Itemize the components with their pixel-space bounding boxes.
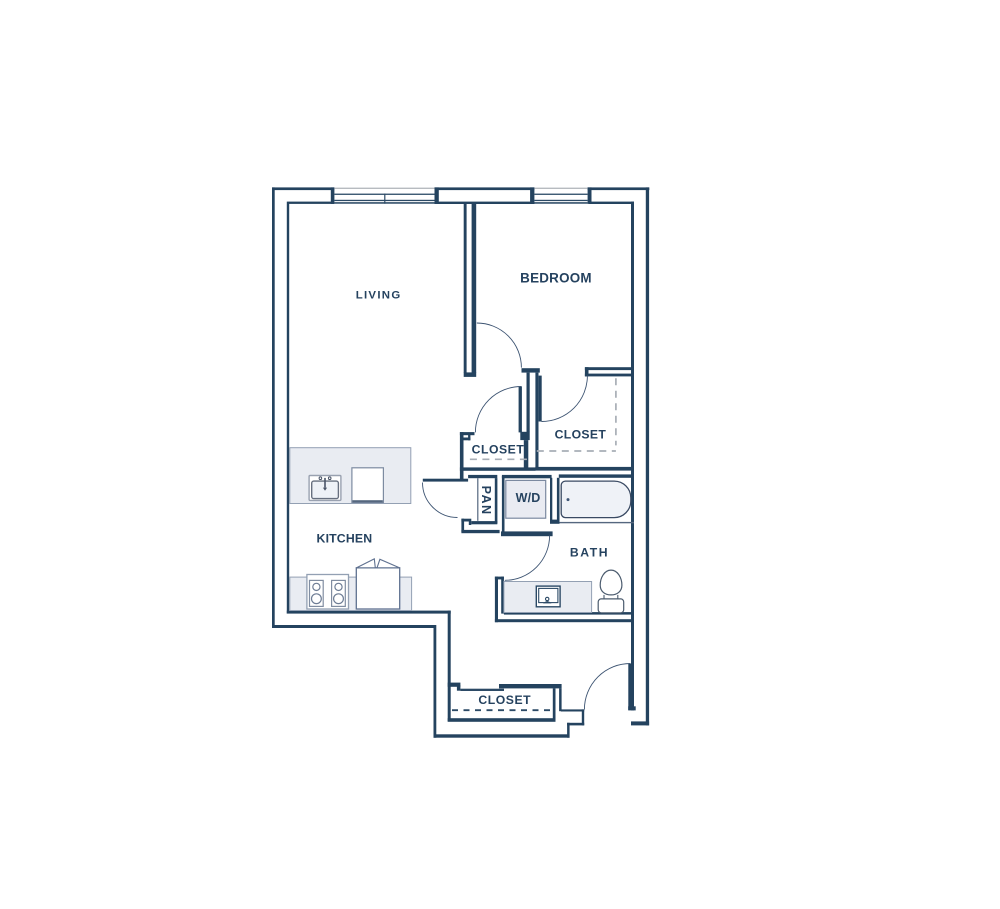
svg-text:LIVING: LIVING	[356, 289, 402, 301]
svg-text:CLOSET: CLOSET	[478, 693, 531, 707]
svg-text:BATH: BATH	[570, 546, 609, 560]
svg-text:W/D: W/D	[516, 491, 541, 505]
svg-text:KITCHEN: KITCHEN	[317, 532, 373, 546]
svg-text:PAN: PAN	[479, 486, 493, 516]
svg-text:BEDROOM: BEDROOM	[520, 271, 592, 286]
svg-text:CLOSET: CLOSET	[555, 428, 607, 442]
svg-text:CLOSET: CLOSET	[472, 443, 525, 457]
